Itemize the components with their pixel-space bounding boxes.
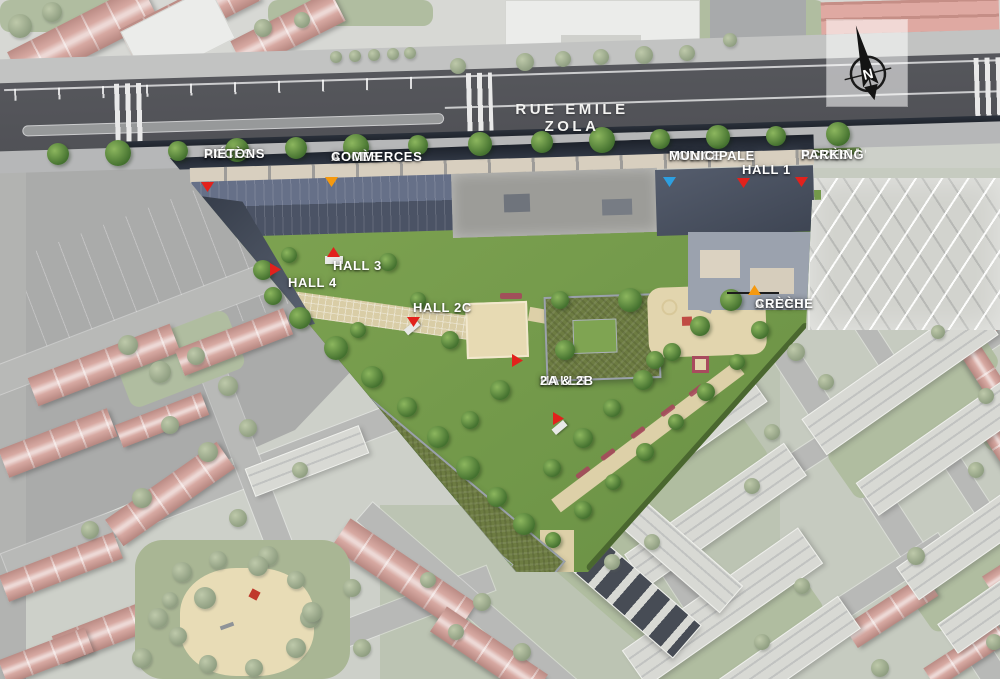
tree-icon	[555, 51, 571, 67]
skylight	[504, 194, 531, 213]
tree-icon	[907, 547, 925, 565]
tree-icon	[513, 513, 535, 535]
roof-terrace	[700, 250, 740, 278]
tree-icon	[330, 51, 342, 63]
tree-icon	[729, 354, 745, 370]
tree-icon	[751, 321, 769, 339]
tree-icon	[368, 49, 380, 61]
tree-icon	[161, 416, 179, 434]
tree-icon	[168, 141, 188, 161]
label-line: HALL 1	[742, 163, 791, 177]
tree-icon	[361, 366, 383, 388]
tree-icon	[978, 388, 994, 404]
tree-icon	[636, 443, 654, 461]
flower-planter	[692, 356, 709, 373]
tree-icon	[663, 343, 681, 361]
tree-icon	[766, 126, 786, 146]
tree-icon	[387, 48, 399, 60]
tree-icon	[420, 572, 436, 588]
label-line: HALL 2C	[413, 301, 472, 315]
tree-icon	[644, 534, 660, 550]
tree-icon	[149, 361, 171, 383]
tree-icon	[516, 53, 534, 71]
label-line: 2A & 2B	[540, 374, 594, 388]
tree-icon	[787, 343, 805, 361]
tree-icon	[169, 627, 187, 645]
tree-icon	[487, 487, 507, 507]
tree-icon	[679, 45, 695, 61]
tree-icon	[633, 370, 653, 390]
tree-icon	[8, 14, 32, 38]
tree-icon	[545, 532, 561, 548]
compass-rose-icon: N	[827, 20, 907, 106]
tree-icon	[343, 579, 361, 597]
tree-icon	[650, 129, 670, 149]
parking-bays	[14, 76, 434, 101]
tree-icon	[931, 325, 945, 339]
tree-icon	[285, 137, 307, 159]
tree-icon	[573, 428, 593, 448]
tree-icon	[818, 374, 834, 390]
tree-icon	[349, 50, 361, 62]
crosswalk	[114, 83, 146, 142]
tree-icon	[427, 426, 449, 448]
tree-icon	[198, 442, 218, 462]
play-equipment-icon	[248, 588, 260, 600]
label-line: CRÈCHE	[755, 297, 814, 311]
label-line: MUNICIPALE	[669, 149, 755, 163]
crosswalk	[974, 57, 1000, 116]
tree-icon	[794, 578, 810, 594]
tree-icon	[646, 351, 664, 369]
tree-icon	[289, 307, 311, 329]
tree-icon	[603, 399, 621, 417]
tree-icon	[461, 411, 479, 429]
tree-icon	[986, 634, 1000, 650]
tree-icon	[551, 291, 569, 309]
tree-icon	[162, 592, 178, 608]
tree-icon	[754, 634, 770, 650]
tree-icon	[604, 554, 620, 570]
skylight	[602, 199, 632, 216]
tree-icon	[618, 288, 642, 312]
tree-icon	[209, 551, 227, 569]
tree-icon	[593, 49, 609, 65]
tree-icon	[148, 608, 168, 628]
tree-icon	[187, 347, 205, 365]
tree-icon	[239, 419, 257, 437]
tree-icon	[723, 33, 737, 47]
tree-icon	[473, 593, 491, 611]
tree-icon	[404, 47, 416, 59]
tree-icon	[574, 501, 592, 519]
tree-icon	[172, 562, 192, 582]
tree-icon	[397, 397, 417, 417]
tree-icon	[456, 456, 480, 480]
tree-icon	[118, 335, 138, 355]
tree-icon	[287, 571, 305, 589]
tree-icon	[764, 424, 780, 440]
tree-icon	[468, 132, 492, 156]
terraced-apartment-complex	[808, 178, 1000, 330]
tree-icon	[229, 509, 247, 527]
flower-bed	[500, 293, 522, 299]
tree-icon	[668, 414, 684, 430]
tree-icon	[105, 140, 131, 166]
tree-icon	[555, 340, 575, 360]
street-name-label: RUE EMILE ZOLA	[507, 101, 637, 135]
tree-icon	[248, 556, 268, 576]
tree-icon	[294, 12, 310, 28]
tree-icon	[706, 125, 730, 149]
tree-icon	[353, 639, 371, 657]
tree-icon	[350, 322, 366, 338]
tree-icon	[543, 459, 561, 477]
label-line: COMMERCES	[331, 150, 422, 164]
tree-icon	[132, 648, 152, 668]
lawn-pocket	[572, 319, 617, 355]
crosswalk	[466, 72, 494, 131]
tree-icon	[81, 521, 99, 539]
tree-icon	[286, 638, 306, 658]
tree-icon	[968, 462, 984, 478]
tree-icon	[490, 380, 510, 400]
site-plan-map: RUE EMILE ZOLA ACCÈS PIÉTONS ACCÈS COMME…	[0, 0, 1000, 679]
tree-icon	[826, 122, 850, 146]
median-island	[23, 114, 443, 136]
tree-icon	[324, 336, 348, 360]
play-equipment-icon	[220, 622, 235, 631]
roof-center-concrete	[451, 168, 659, 238]
tree-icon	[292, 462, 308, 478]
tree-icon	[194, 587, 216, 609]
tree-icon	[254, 19, 272, 37]
west-edge-street	[0, 160, 26, 679]
tree-icon	[605, 474, 621, 490]
compass: N	[827, 20, 907, 106]
tree-icon	[690, 316, 710, 336]
tree-icon	[245, 659, 263, 677]
tree-icon	[441, 331, 459, 349]
tree-icon	[264, 287, 282, 305]
tree-icon	[302, 602, 322, 622]
tree-icon	[281, 247, 297, 263]
tree-icon	[635, 46, 653, 64]
tree-icon	[697, 383, 715, 401]
label-line: PIÉTONS	[204, 147, 265, 161]
tree-icon	[199, 655, 217, 673]
tree-icon	[42, 2, 62, 22]
tree-icon	[47, 143, 69, 165]
tree-icon	[871, 659, 889, 677]
tree-icon	[448, 624, 464, 640]
tree-icon	[218, 376, 238, 396]
tree-icon	[132, 488, 152, 508]
tree-icon	[744, 478, 760, 494]
label-line: PARKING	[801, 148, 864, 162]
sand-circle	[661, 299, 678, 316]
label-line: HALL 3	[333, 259, 382, 273]
sand-plaza	[465, 301, 529, 359]
tree-icon	[450, 58, 466, 74]
tree-icon	[513, 643, 531, 661]
label-line: HALL 4	[288, 276, 337, 290]
